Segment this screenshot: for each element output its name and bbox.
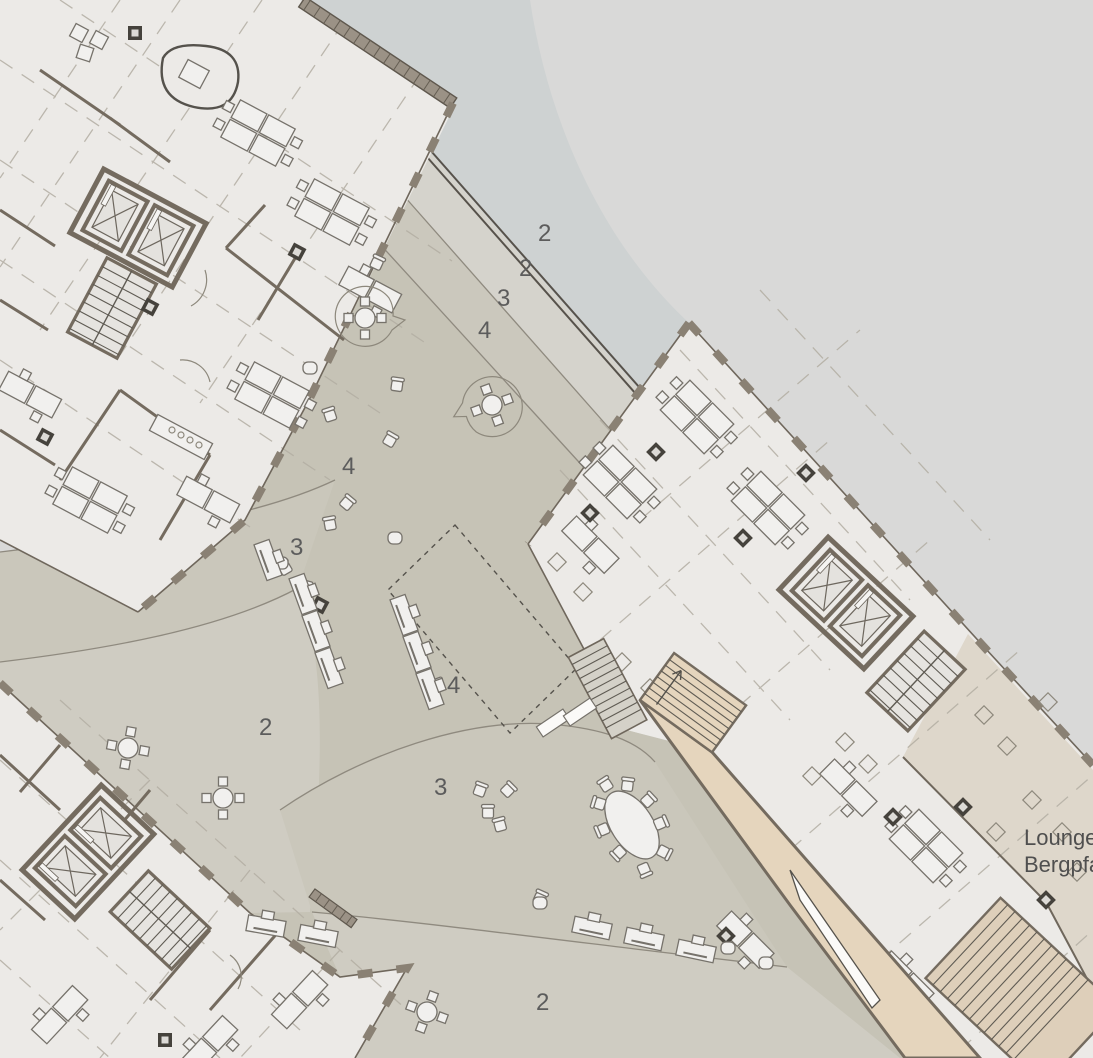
meeting-pod: [162, 45, 239, 108]
zone-marker: 3: [290, 534, 303, 561]
zone-marker: 2: [538, 220, 551, 247]
zone-marker: 4: [447, 672, 460, 699]
zone-marker: 4: [342, 453, 355, 480]
zone-marker: 2: [519, 255, 532, 282]
column-icon: [158, 1033, 172, 1047]
zone-marker: 4: [478, 317, 491, 344]
floor-plan-canvas: 2 2 3 4 4 3 2 4 3 2 Lounge Bergpfad: [0, 0, 1093, 1058]
zone-marker: 2: [536, 989, 549, 1016]
lounge-label-line1: Lounge: [1024, 825, 1093, 850]
lounge-label-line2: Bergpfad: [1024, 852, 1093, 877]
zone-marker: 3: [497, 285, 510, 312]
column-icon: [128, 26, 142, 40]
zone-marker: 3: [434, 774, 447, 801]
floor-plan-page: 2 2 3 4 4 3 2 4 3 2 Lounge Bergpfad: [0, 0, 1093, 1058]
zone-marker: 2: [259, 714, 272, 741]
